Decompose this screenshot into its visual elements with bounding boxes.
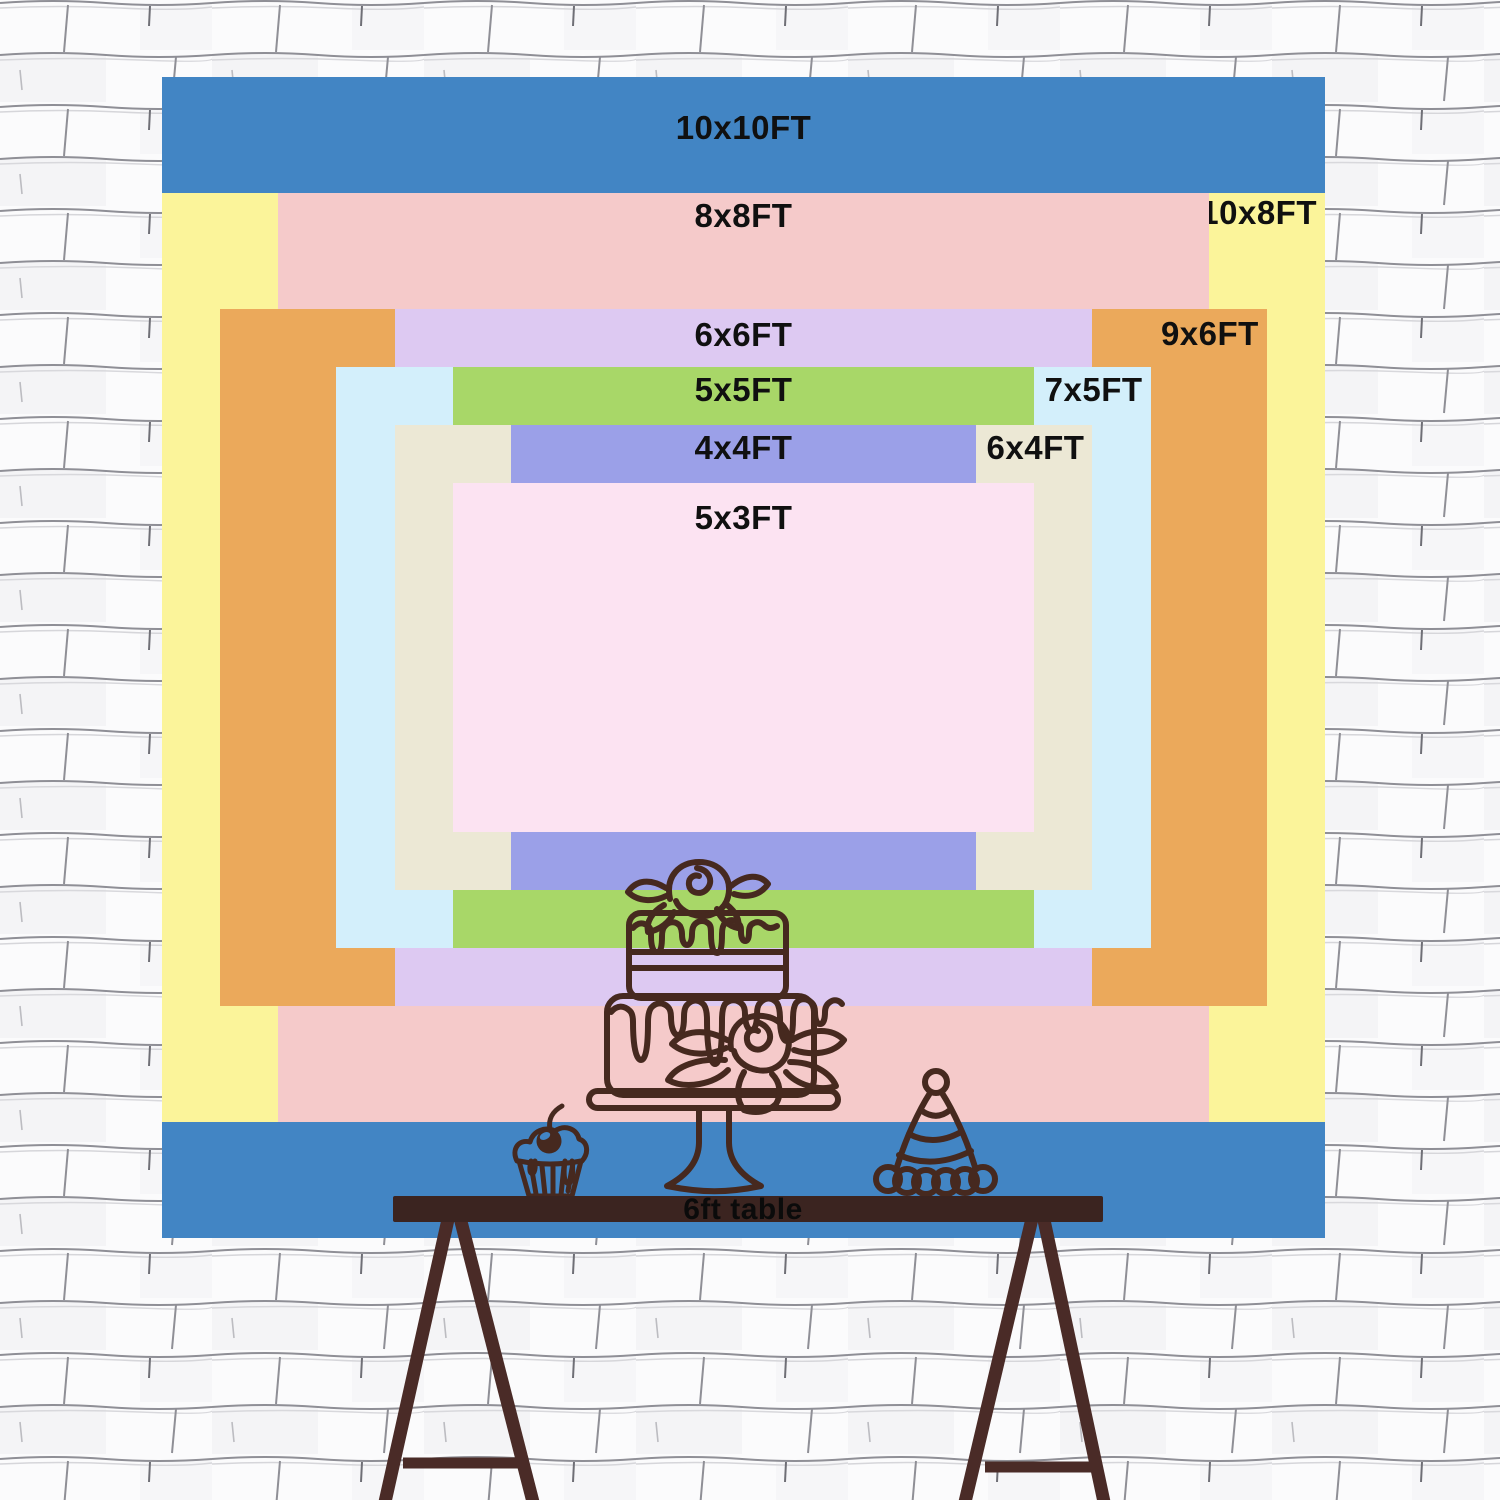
table-legs (385, 1206, 1104, 1500)
table-and-decorations: 6ft table (0, 0, 1500, 1500)
tiered-cake-icon (589, 862, 844, 1191)
backdrop-size-chart: 10x10FT10x8FT8x8FT9x6FT6x6FT7x5FT5x5FT6x… (0, 0, 1500, 1500)
cupcake-icon (515, 1106, 587, 1196)
party-hat-icon (876, 1071, 995, 1194)
table-label: 6ft table (683, 1193, 803, 1226)
